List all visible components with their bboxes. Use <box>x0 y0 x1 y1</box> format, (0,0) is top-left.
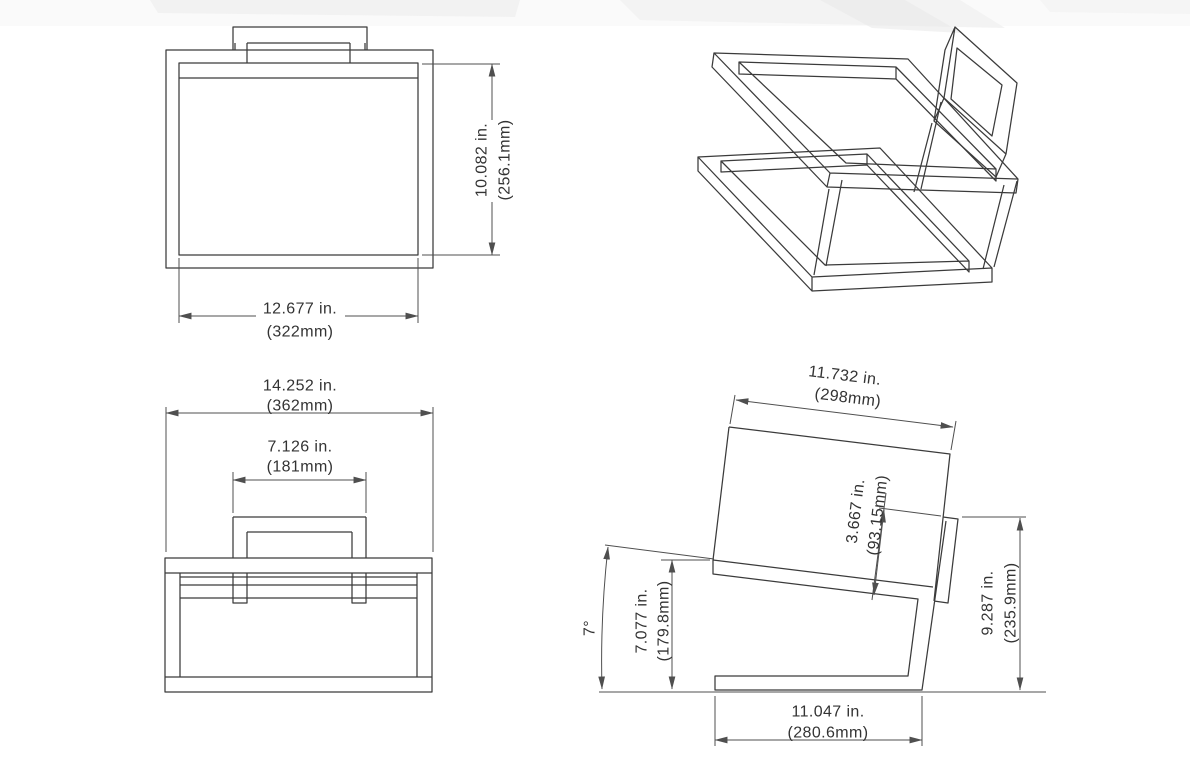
technical-drawing-canvas: 10.082 in. (256.1mm) 12.677 in. (322mm) … <box>0 0 1190 762</box>
dim-side-seat-depth-mm: (298mm) <box>814 386 882 411</box>
dim-side-front-height-mm: (179.8mm) <box>656 581 673 662</box>
drawing-sheet: 10.082 in. (256.1mm) 12.677 in. (322mm) … <box>0 0 1190 762</box>
dim-front-backrest-width-in: 7.126 in. <box>268 439 333 456</box>
dim-top-height-mm: (256.1mm) <box>497 120 514 201</box>
dim-top-width-mm: (322mm) <box>267 324 334 341</box>
top-view-outline <box>166 27 433 268</box>
side-view: 11.732 in. (298mm) 3.667 in. (93.15mm) 7… <box>582 363 1046 746</box>
side-view-profile <box>713 427 958 690</box>
dim-side-backrest-height-in: 3.667 in. <box>844 478 869 545</box>
front-view-outline <box>165 517 432 692</box>
dim-front-overall-width-mm: (362mm) <box>267 398 334 415</box>
dim-side-front-height-in: 7.077 in. <box>634 589 651 654</box>
isometric-view <box>698 27 1018 291</box>
side-view-angle-arc <box>602 547 608 689</box>
dim-side-seat-angle: 7° <box>582 620 599 636</box>
dim-front-backrest-width-mm: (181mm) <box>267 459 334 476</box>
dim-front-overall-width-in: 14.252 in. <box>263 378 337 395</box>
iso-support-bars <box>814 102 1017 275</box>
front-view: 14.252 in. (362mm) 7.126 in. (181mm) <box>165 378 433 692</box>
iso-base-frame <box>698 148 992 291</box>
top-view: 10.082 in. (256.1mm) 12.677 in. (322mm) <box>166 27 514 341</box>
iso-backrest-frame <box>934 27 1017 177</box>
dim-side-backrest-height-mm: (93.15mm) <box>865 474 892 556</box>
dim-side-base-depth-mm: (280.6mm) <box>788 725 869 742</box>
dim-side-overall-height-in: 9.287 in. <box>980 571 997 636</box>
scan-artifact <box>0 0 1190 33</box>
dim-side-base-depth-in: 11.047 in. <box>791 704 864 721</box>
dim-top-height-in: 10.082 in. <box>474 123 491 197</box>
top-view-extension-lines <box>179 64 500 323</box>
dim-top-width-in: 12.677 in. <box>263 301 337 318</box>
side-view-extension-lines <box>599 395 1046 746</box>
dim-side-overall-height-mm: (235.9mm) <box>1003 563 1020 644</box>
